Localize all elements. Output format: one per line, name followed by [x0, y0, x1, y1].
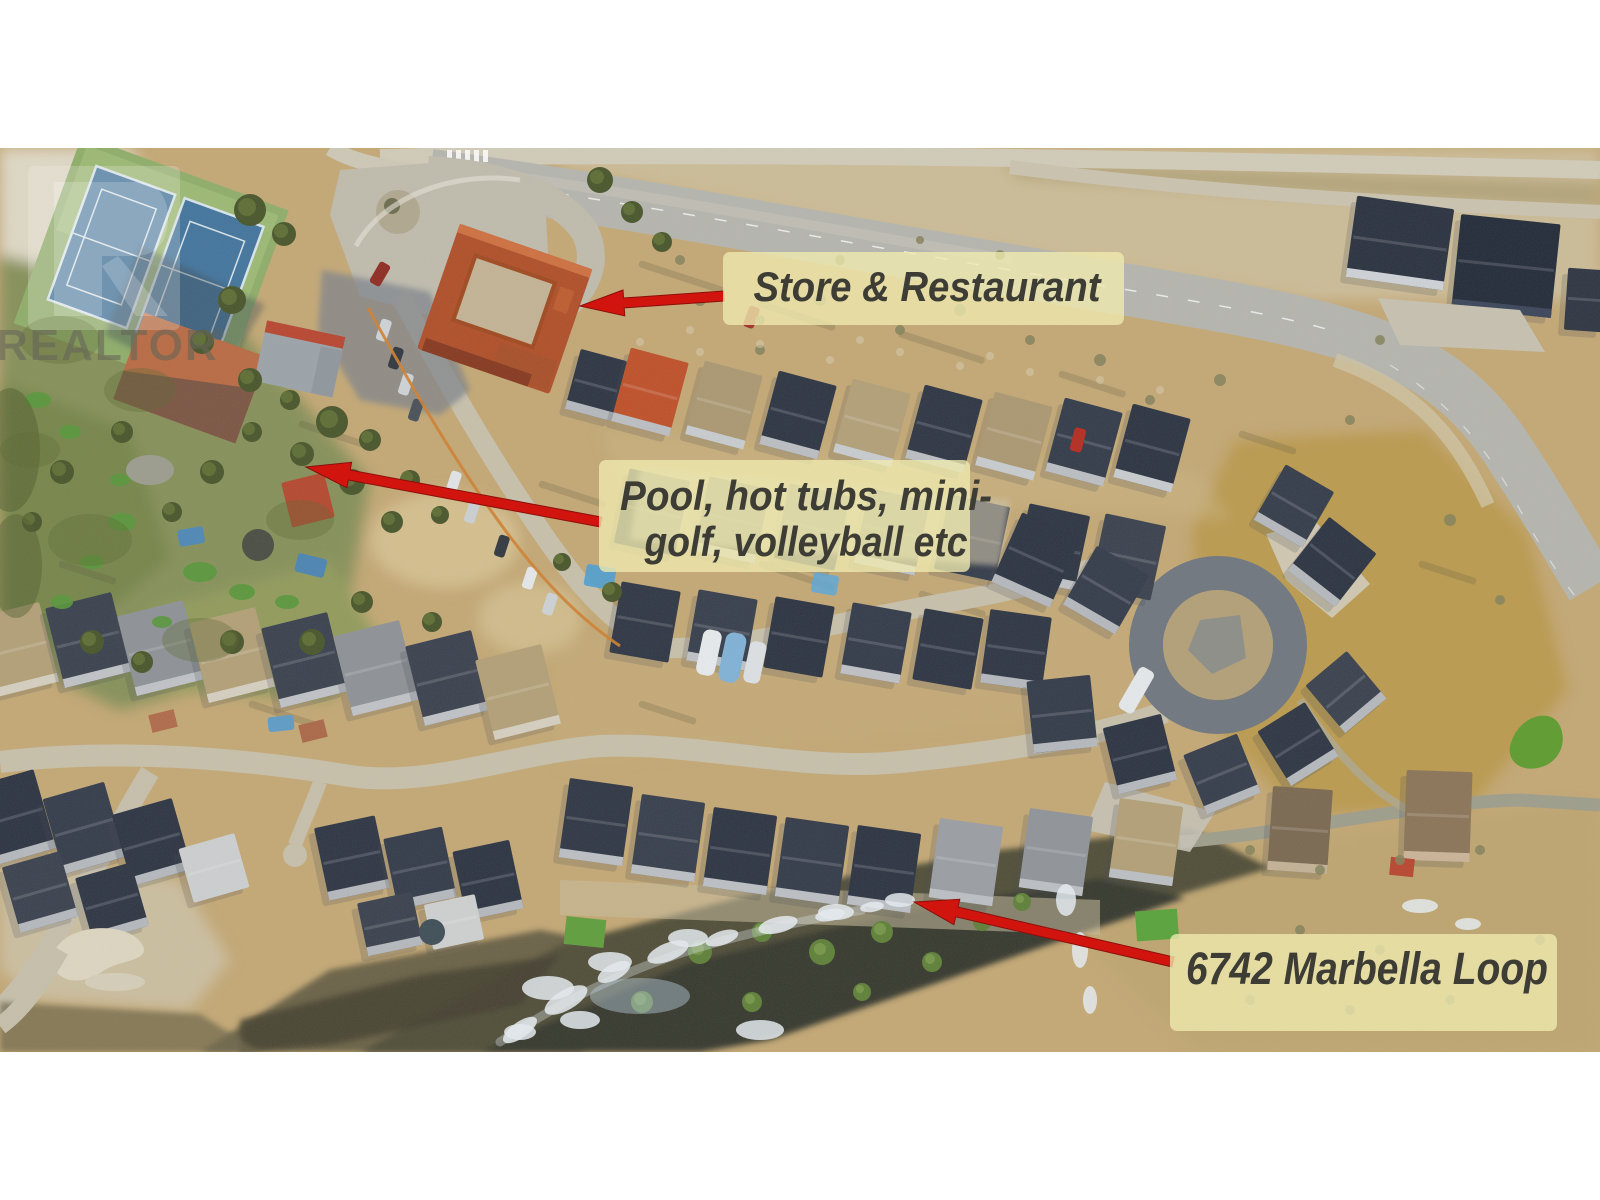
svg-text:®: ® — [212, 327, 224, 344]
svg-text:Store & Restaurant: Store & Restaurant — [754, 263, 1103, 310]
svg-text:golf, volleyball etc: golf, volleyball etc — [644, 518, 968, 565]
svg-text:6742 Marbella Loop: 6742 Marbella Loop — [1186, 943, 1548, 994]
svg-text:Pool, hot tubs, mini-: Pool, hot tubs, mini- — [620, 472, 992, 519]
svg-text:REALTOR: REALTOR — [0, 321, 219, 370]
